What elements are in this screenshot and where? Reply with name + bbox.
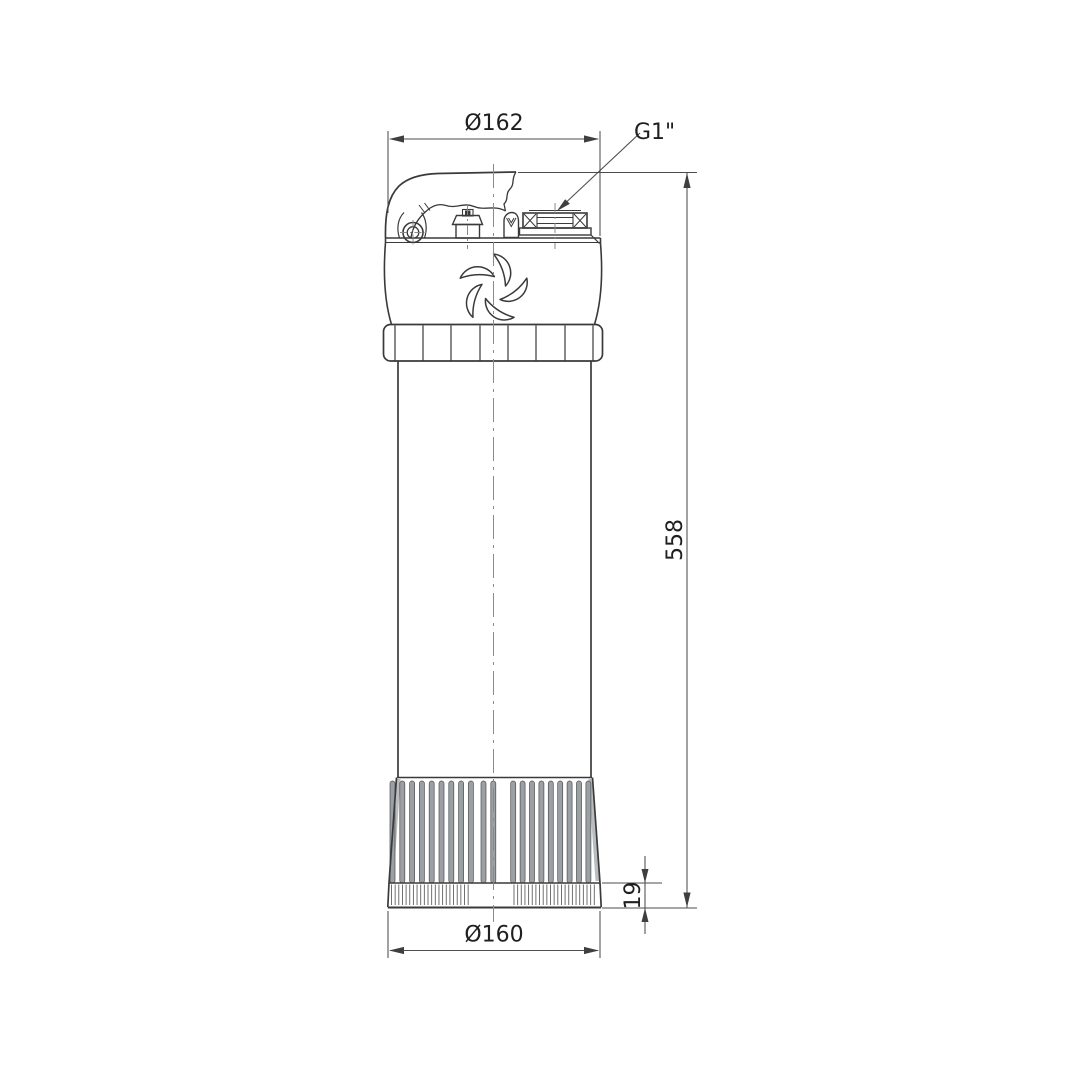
strainer-slot (459, 781, 464, 883)
dim-overall-height: 558 (518, 173, 697, 909)
dim558-arrow-bottom (683, 893, 690, 908)
dim-bottom-diameter-label: Ø160 (464, 923, 523, 948)
vent-valve (504, 213, 519, 238)
eyelet-centerlines (400, 220, 426, 245)
outlet-thread-label: G1" (634, 120, 675, 145)
dim160-arrow-right (584, 947, 599, 954)
pump-dimension-drawing: Ø162 G1" 558 19 Ø160 (0, 0, 1080, 1080)
strainer-slot (530, 781, 535, 883)
impeller-blade (494, 254, 511, 286)
strainer-slot (439, 781, 444, 883)
strainer-slot (400, 781, 405, 883)
overall-height-label: 558 (663, 519, 688, 561)
strainer-slot (548, 781, 553, 883)
dim19-arrow-top (642, 869, 649, 883)
vent-v-mark (507, 218, 517, 227)
foot-band-hatching (392, 885, 595, 906)
handle-outer-edge (385, 172, 516, 238)
foot-band-height-label: 19 (621, 882, 646, 910)
impeller-blade (460, 262, 496, 288)
strainer-slot (558, 781, 563, 883)
impeller-logo-icon (459, 254, 532, 327)
dim162-arrow-right (584, 135, 599, 142)
impeller-blade (496, 278, 532, 304)
strainer-slot (419, 781, 424, 883)
dim162-arrow-left (389, 135, 404, 142)
foot-band-right (600, 883, 601, 907)
dim-top-diameter-label: Ø162 (464, 111, 523, 136)
strainer-slot (511, 781, 516, 883)
head-left-edge (384, 238, 391, 325)
head-right-edge (595, 238, 602, 325)
dim-foot-band-height: 19 (602, 856, 662, 934)
strainer-slot (481, 781, 486, 883)
vent-body (504, 213, 519, 238)
strainer-slot (539, 781, 544, 883)
handle-break-line (504, 172, 516, 211)
strainer-slot (449, 781, 454, 883)
strainer-slot (567, 781, 572, 883)
dim160-arrow-left (389, 947, 404, 954)
strainer-slot (410, 781, 415, 883)
drawing-canvas: Ø162 G1" 558 19 Ø160 (0, 0, 1080, 1080)
callout-outlet-thread: G1" (557, 120, 675, 211)
strainer-slots (390, 781, 591, 883)
pump-body (398, 361, 591, 778)
strainer-slot (429, 781, 434, 883)
dim558-arrow-top (683, 173, 690, 188)
strainer-slot (586, 781, 591, 883)
foot-band-left (388, 883, 389, 907)
handle-detail-hatch (419, 203, 430, 213)
strainer-slot (520, 781, 525, 883)
pump-handle (385, 172, 516, 238)
lifting-eyelet (400, 220, 426, 245)
strainer-slot (468, 781, 473, 883)
strainer-slot (577, 781, 582, 883)
